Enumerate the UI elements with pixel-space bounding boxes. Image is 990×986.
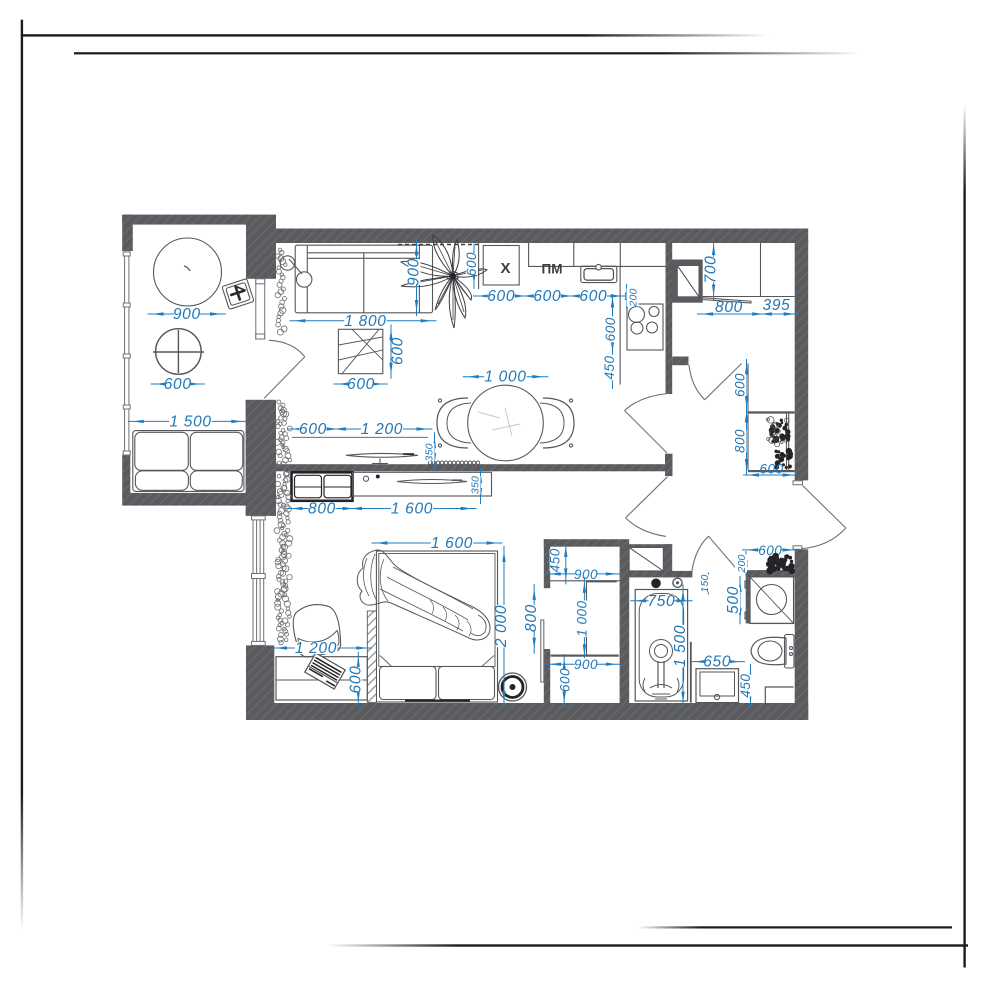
svg-text:1 600: 1 600: [431, 535, 473, 552]
svg-text:ПМ: ПМ: [542, 262, 563, 277]
svg-text:395: 395: [763, 297, 791, 314]
svg-text:1 000: 1 000: [574, 600, 589, 636]
svg-text:1 200: 1 200: [361, 421, 403, 438]
svg-text:450: 450: [738, 674, 753, 698]
svg-text:1 800: 1 800: [344, 313, 386, 330]
svg-text:650: 650: [703, 654, 731, 671]
svg-text:450: 450: [602, 355, 617, 379]
svg-text:900: 900: [406, 258, 423, 286]
svg-text:600: 600: [464, 252, 479, 276]
svg-text:500: 500: [725, 586, 742, 614]
svg-text:150: 150: [699, 574, 711, 592]
svg-text:700: 700: [703, 256, 720, 284]
svg-text:750: 750: [647, 593, 675, 610]
svg-text:800: 800: [308, 501, 336, 518]
svg-text:200: 200: [628, 288, 640, 307]
svg-text:1 500: 1 500: [672, 625, 689, 667]
svg-text:1 200: 1 200: [295, 640, 337, 657]
svg-text:600: 600: [390, 337, 407, 365]
svg-text:600: 600: [579, 288, 607, 305]
svg-text:600: 600: [533, 288, 561, 305]
svg-text:600: 600: [733, 373, 748, 397]
svg-text:600: 600: [759, 462, 783, 477]
svg-text:450: 450: [548, 548, 563, 572]
svg-text:2 000: 2 000: [493, 605, 510, 648]
svg-text:600: 600: [347, 376, 375, 393]
svg-text:600: 600: [299, 421, 327, 438]
svg-text:900: 900: [574, 657, 598, 672]
svg-text:600: 600: [164, 376, 192, 393]
svg-text:800: 800: [715, 299, 743, 316]
svg-text:800: 800: [733, 429, 748, 453]
svg-text:900: 900: [574, 567, 598, 582]
svg-text:350: 350: [424, 443, 436, 461]
svg-text:600: 600: [347, 666, 364, 694]
svg-text:600: 600: [603, 317, 618, 341]
svg-text:350: 350: [470, 476, 482, 494]
svg-text:200: 200: [736, 554, 748, 573]
svg-text:X: X: [500, 260, 510, 277]
svg-text:600: 600: [558, 668, 573, 692]
svg-text:600: 600: [487, 288, 515, 305]
svg-text:1 600: 1 600: [391, 501, 433, 518]
svg-text:1 500: 1 500: [169, 413, 211, 430]
svg-text:900: 900: [173, 306, 201, 323]
svg-text:800: 800: [523, 604, 540, 632]
svg-text:1 000: 1 000: [484, 369, 526, 386]
